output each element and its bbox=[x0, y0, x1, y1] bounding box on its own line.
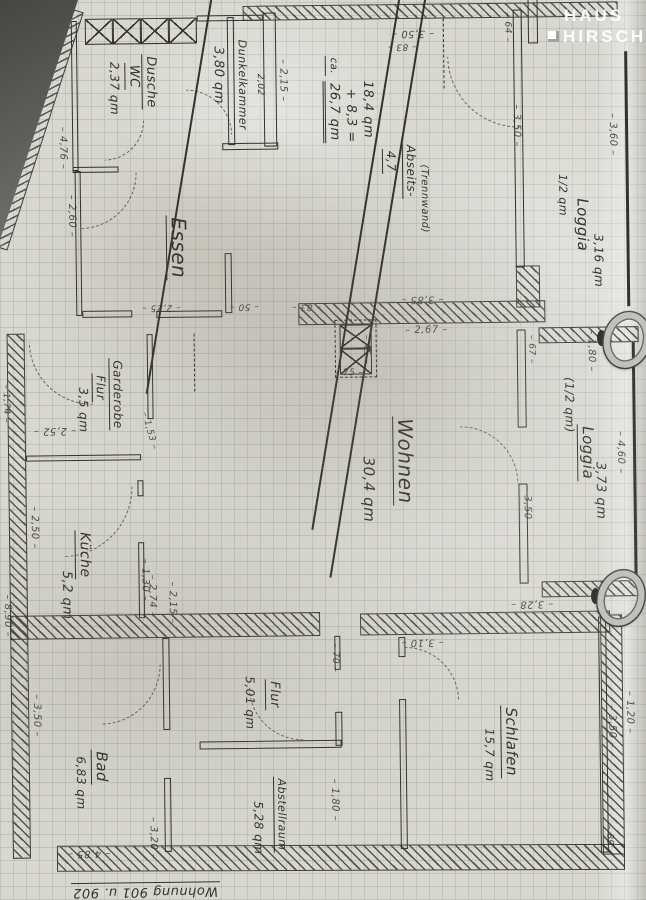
wall bbox=[516, 265, 541, 307]
area-flur: 5,01 qm bbox=[244, 676, 257, 729]
room-label-kueche: Küche bbox=[74, 530, 92, 580]
room-label-wc: WC bbox=[124, 63, 140, 90]
dimension: 2,15 bbox=[277, 59, 288, 102]
door-swing-arc bbox=[62, 486, 133, 557]
room-label-garderobe-flur: Flur bbox=[92, 373, 107, 402]
room-label-loggia-top: Loggia bbox=[574, 198, 590, 251]
dimension: 3,50 bbox=[392, 28, 435, 39]
window-symbol bbox=[113, 18, 141, 44]
dimension: 4,85 bbox=[68, 848, 111, 859]
dimension: 1,53 bbox=[139, 411, 158, 451]
wall bbox=[57, 844, 625, 872]
logo-icon bbox=[548, 31, 559, 42]
wall bbox=[399, 699, 408, 849]
room-label-garderobe: Garderobe bbox=[108, 358, 124, 431]
dimension: 75 bbox=[334, 369, 363, 378]
dimension: 1,74 bbox=[1, 384, 10, 423]
dimension: 2,60 bbox=[66, 195, 77, 238]
note-half-qm: (1/2 qm) bbox=[563, 377, 576, 433]
room-label-essen: Essen bbox=[166, 215, 190, 280]
room-label-dunkelkammer: Dunkelkammer bbox=[236, 40, 248, 131]
wall bbox=[624, 51, 630, 306]
dimension: 4,76 bbox=[57, 127, 68, 170]
floor-plan-photo: DuscheWC2,37 qmDunkelkammer3,80 qm2,522,… bbox=[0, 0, 646, 900]
area-loggia-mid: 3,73 qm bbox=[594, 462, 608, 520]
room-label-abstellraum: Abstellraum bbox=[273, 777, 288, 853]
dimension: 67 bbox=[526, 335, 535, 364]
dimension: 3,60 bbox=[607, 113, 618, 156]
wall bbox=[162, 638, 170, 730]
haus-hirsch-watermark: HAUS HIRSCH bbox=[548, 5, 646, 48]
dimension: 3,50 bbox=[606, 705, 617, 748]
note-half-qm: 1/2 qm bbox=[557, 174, 569, 216]
dimension: 3,50 bbox=[31, 694, 42, 737]
dimension: 3,28 bbox=[511, 598, 554, 609]
calc-crossed: 22,0 bbox=[357, 0, 383, 508]
floor-plan-drawing: DuscheWC2,37 qmDunkelkammer3,80 qm2,522,… bbox=[0, 0, 646, 900]
area-dunkelkammer: 3,80 qm bbox=[212, 46, 226, 104]
wall bbox=[137, 480, 143, 496]
dimension: 3,50 bbox=[521, 486, 532, 529]
area-dusche-wc: 2,37 qm bbox=[108, 62, 121, 115]
room-label-dusche: Dusche bbox=[141, 54, 158, 110]
door-swing-arc bbox=[101, 664, 162, 725]
logo-text-line2: HIRSCH bbox=[563, 26, 646, 47]
dimension: 83 bbox=[292, 302, 321, 311]
dimension: 3,50 bbox=[511, 104, 522, 147]
door-swing-arc bbox=[81, 172, 138, 229]
graph-paper-sheet: DuscheWC2,37 qmDunkelkammer3,80 qm2,522,… bbox=[0, 0, 646, 900]
door-swing-arc bbox=[460, 426, 519, 485]
area-abstellraum: 5,28 qm bbox=[252, 801, 265, 854]
window-symbol bbox=[85, 19, 113, 45]
sheet-caption: Wohnung 901 u. 902 bbox=[71, 881, 221, 899]
area-loggia-top: 3,16 qm bbox=[592, 234, 605, 287]
wall bbox=[632, 342, 638, 580]
window-symbol bbox=[141, 18, 169, 44]
dashed-line bbox=[194, 334, 197, 392]
wall bbox=[360, 611, 610, 636]
dimension: 3,10 bbox=[401, 637, 444, 648]
note-abseits: Abseits- bbox=[402, 143, 418, 199]
room-label-flur: Flur bbox=[265, 679, 281, 710]
dimension: 2,25 bbox=[142, 302, 181, 311]
dimension: 3,20 bbox=[147, 817, 158, 860]
logo-text-line1: HAUS bbox=[548, 5, 646, 26]
wall bbox=[222, 143, 278, 151]
dimension: 2,52 bbox=[33, 425, 76, 436]
dimension: 1,20 bbox=[624, 691, 635, 734]
dimension: 2,67 bbox=[405, 325, 448, 336]
area-garderobe: 3,5 qm bbox=[77, 387, 90, 432]
room-label-bad: Bad bbox=[91, 749, 109, 784]
wall bbox=[200, 740, 342, 750]
wall bbox=[82, 310, 132, 318]
door-swing-arc bbox=[447, 56, 520, 129]
room-label-wohnen: Wohnen bbox=[392, 416, 416, 506]
dimension: 1,80 bbox=[586, 329, 597, 372]
dimension: 89 bbox=[604, 825, 613, 854]
dimension: 1,80 bbox=[329, 779, 340, 822]
dimension: 83 bbox=[387, 41, 416, 50]
area-bad: 6,83 qm bbox=[75, 756, 88, 809]
wall bbox=[527, 0, 538, 43]
dimension: 50 bbox=[230, 301, 259, 310]
dimension: 2,15 bbox=[167, 581, 178, 624]
wall bbox=[164, 778, 172, 852]
calc-line: + 8,3 = bbox=[344, 88, 358, 142]
dimension: 4,60 bbox=[615, 431, 626, 474]
calc-note: ca. bbox=[325, 56, 338, 76]
dimension: 8,90 bbox=[2, 594, 13, 637]
dimension: 2,50 bbox=[29, 506, 40, 549]
area-wohnen: 30,4 qm bbox=[361, 456, 377, 522]
wall bbox=[26, 454, 141, 461]
dimension: 70 bbox=[330, 643, 339, 672]
window-symbol bbox=[169, 18, 197, 44]
dimension: 2,74 bbox=[147, 575, 158, 618]
dimension: 45 bbox=[361, 335, 370, 364]
dimension: 64 bbox=[502, 13, 511, 42]
dashed-line bbox=[443, 18, 446, 88]
wall bbox=[335, 712, 342, 746]
door-swing-arc bbox=[404, 646, 459, 701]
wall bbox=[517, 330, 527, 428]
area-kueche: 5,2 qm bbox=[60, 571, 74, 620]
area-schlafen: 15,7 qm bbox=[483, 728, 496, 781]
wall bbox=[71, 21, 79, 171]
room-label-schlafen: Schlafen bbox=[500, 705, 519, 778]
dimension: 3,85 bbox=[401, 294, 444, 305]
note-trennwand: (Trennwand) bbox=[419, 164, 430, 233]
wall bbox=[10, 612, 320, 640]
door-swing-arc bbox=[104, 120, 144, 160]
calc-sum: 26,7 qm bbox=[322, 81, 341, 143]
logo-text-line2-row: HIRSCH bbox=[548, 26, 646, 47]
dimension: 2,02 bbox=[255, 74, 264, 96]
